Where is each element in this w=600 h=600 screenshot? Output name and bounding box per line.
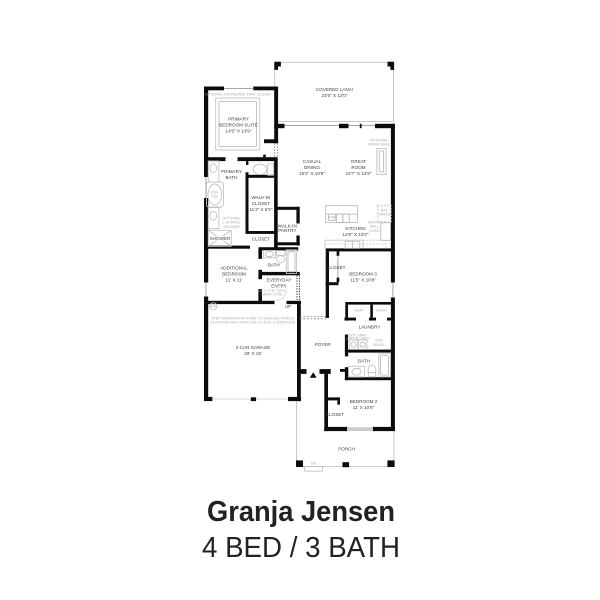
svg-text:OPTIONAL CATHEDRAL TRAY CEILIN: OPTIONAL CATHEDRAL TRAY CEILING [205,93,271,97]
svg-text:BAR: BAR [328,215,336,219]
svg-text:11'5" X 10'8": 11'5" X 10'8" [350,278,376,283]
svg-text:BATH: BATH [226,175,238,180]
svg-text:HEAT: HEAT [355,309,365,313]
svg-text:BEDROOM 2: BEDROOM 2 [350,399,378,404]
svg-text:BEDROOM SUITE: BEDROOM SUITE [219,123,258,128]
svg-text:16'7" X 13'9": 16'7" X 13'9" [346,171,372,176]
svg-text:4 BED / 3 BATH: 4 BED / 3 BATH [202,532,400,564]
svg-text:TUB: TUB [210,194,218,198]
svg-text:SHOWER: SHOWER [223,225,240,229]
svg-text:11' X 10'8": 11' X 10'8" [353,405,375,410]
svg-text:EVERYDAY: EVERYDAY [267,278,292,283]
svg-text:MEDIA WALL: MEDIA WALL [368,143,390,147]
svg-text:LINEN: LINEN [376,309,387,313]
svg-text:PRIMARY: PRIMARY [228,117,249,122]
svg-text:WH: WH [210,305,216,309]
svg-text:14'5" X 13'9": 14'5" X 13'9" [226,129,252,134]
svg-text:KITCHEN: KITCHEN [345,226,365,231]
svg-text:ROOM: ROOM [351,165,365,170]
svg-text:DROP ZONE: DROP ZONE [261,292,283,296]
svg-text:FOYER: FOYER [315,342,332,347]
svg-text:UP: UP [285,304,291,309]
svg-text:BATH: BATH [358,359,370,364]
svg-text:COVERED LANAI: COVERED LANAI [316,87,353,92]
svg-text:BEDROOM: BEDROOM [222,272,246,277]
svg-text:CLOSET: CLOSET [326,412,345,417]
svg-text:SPACE: SPACE [373,343,386,347]
svg-text:11' X 11': 11' X 11' [226,278,243,283]
svg-text:DINING: DINING [304,165,321,170]
svg-text:PORCH: PORCH [338,447,355,452]
svg-text:BATH: BATH [268,263,280,268]
svg-text:FLOORING MAY VARY DUE TO SITE: FLOORING MAY VARY DUE TO SITE CONDITIONS [211,320,296,324]
svg-text:CLOSET: CLOSET [327,265,346,270]
svg-text:24'6" X 12'0": 24'6" X 12'0" [322,93,348,98]
svg-text:DN: DN [311,462,317,466]
svg-text:12'8" X 10'0": 12'8" X 10'0" [343,232,369,237]
svg-text:SHOWER: SHOWER [210,236,231,241]
svg-text:2-CAR GARAGE: 2-CAR GARAGE [236,345,271,350]
svg-text:CASUAL: CASUAL [303,159,322,164]
svg-text:PRIMARY: PRIMARY [221,169,242,174]
svg-text:PANTRY: PANTRY [278,228,296,233]
svg-text:ENTRY: ENTRY [271,284,287,289]
svg-text:OVEN: OVEN [369,229,380,233]
svg-text:Granja Jensen: Granja Jensen [207,496,395,528]
svg-text:11'2" X 5'5": 11'2" X 5'5" [249,207,272,212]
svg-text:CLOSET: CLOSET [252,237,271,242]
svg-text:20' X 19': 20' X 19' [244,351,262,356]
svg-text:GREAT: GREAT [351,159,367,164]
svg-text:ADDITIONAL: ADDITIONAL [220,266,248,271]
svg-text:SPACE: SPACE [379,213,392,217]
svg-text:LAUNDRY: LAUNDRY [359,324,381,329]
svg-text:WALK-IN: WALK-IN [252,195,271,200]
svg-text:16'2" X 10'8": 16'2" X 10'8" [299,171,325,176]
svg-text:BEDROOM 3: BEDROOM 3 [349,272,377,277]
svg-text:CLOSET: CLOSET [252,201,271,206]
